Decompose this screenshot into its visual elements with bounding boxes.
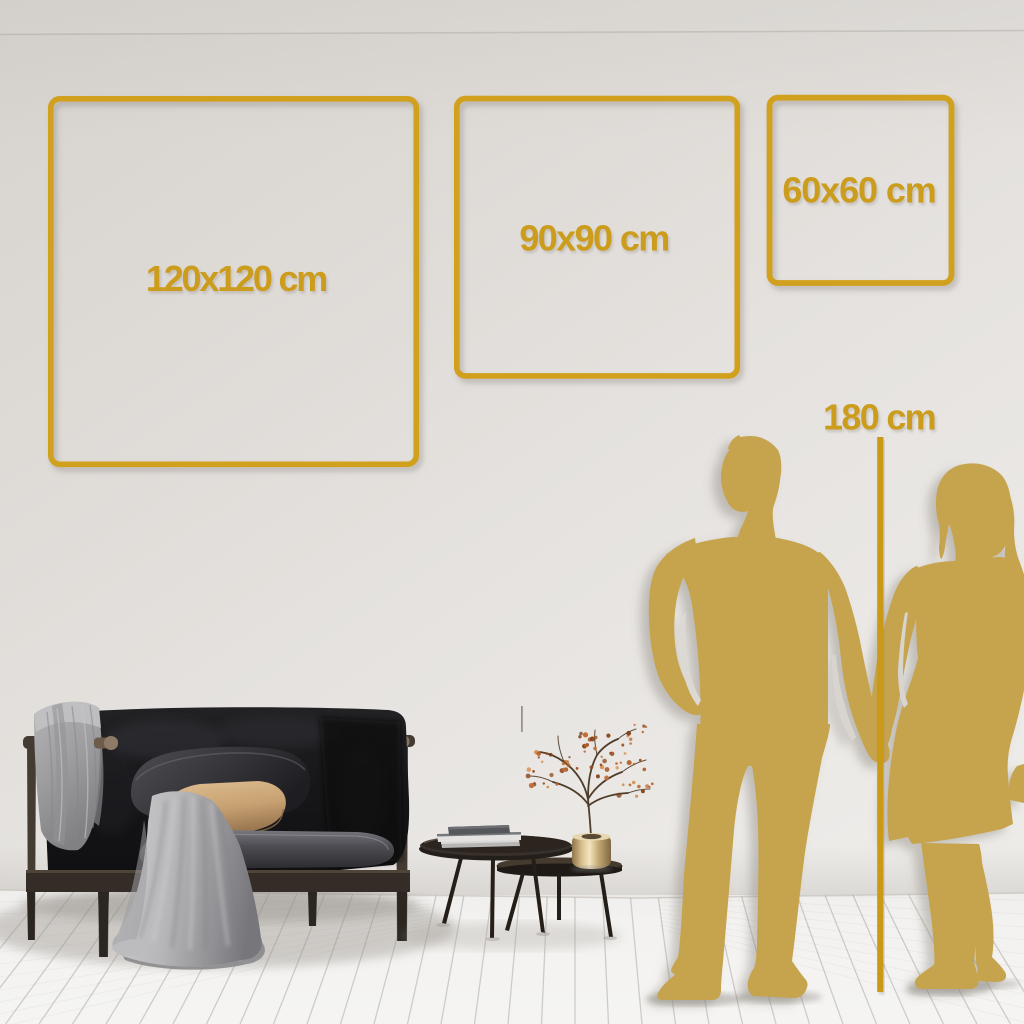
svg-text:90x90 cm: 90x90 cm [519, 218, 668, 259]
svg-text:60x60 cm: 60x60 cm [782, 170, 935, 211]
svg-text:180 cm: 180 cm [823, 397, 935, 438]
svg-text:120x120 cm: 120x120 cm [146, 258, 326, 299]
